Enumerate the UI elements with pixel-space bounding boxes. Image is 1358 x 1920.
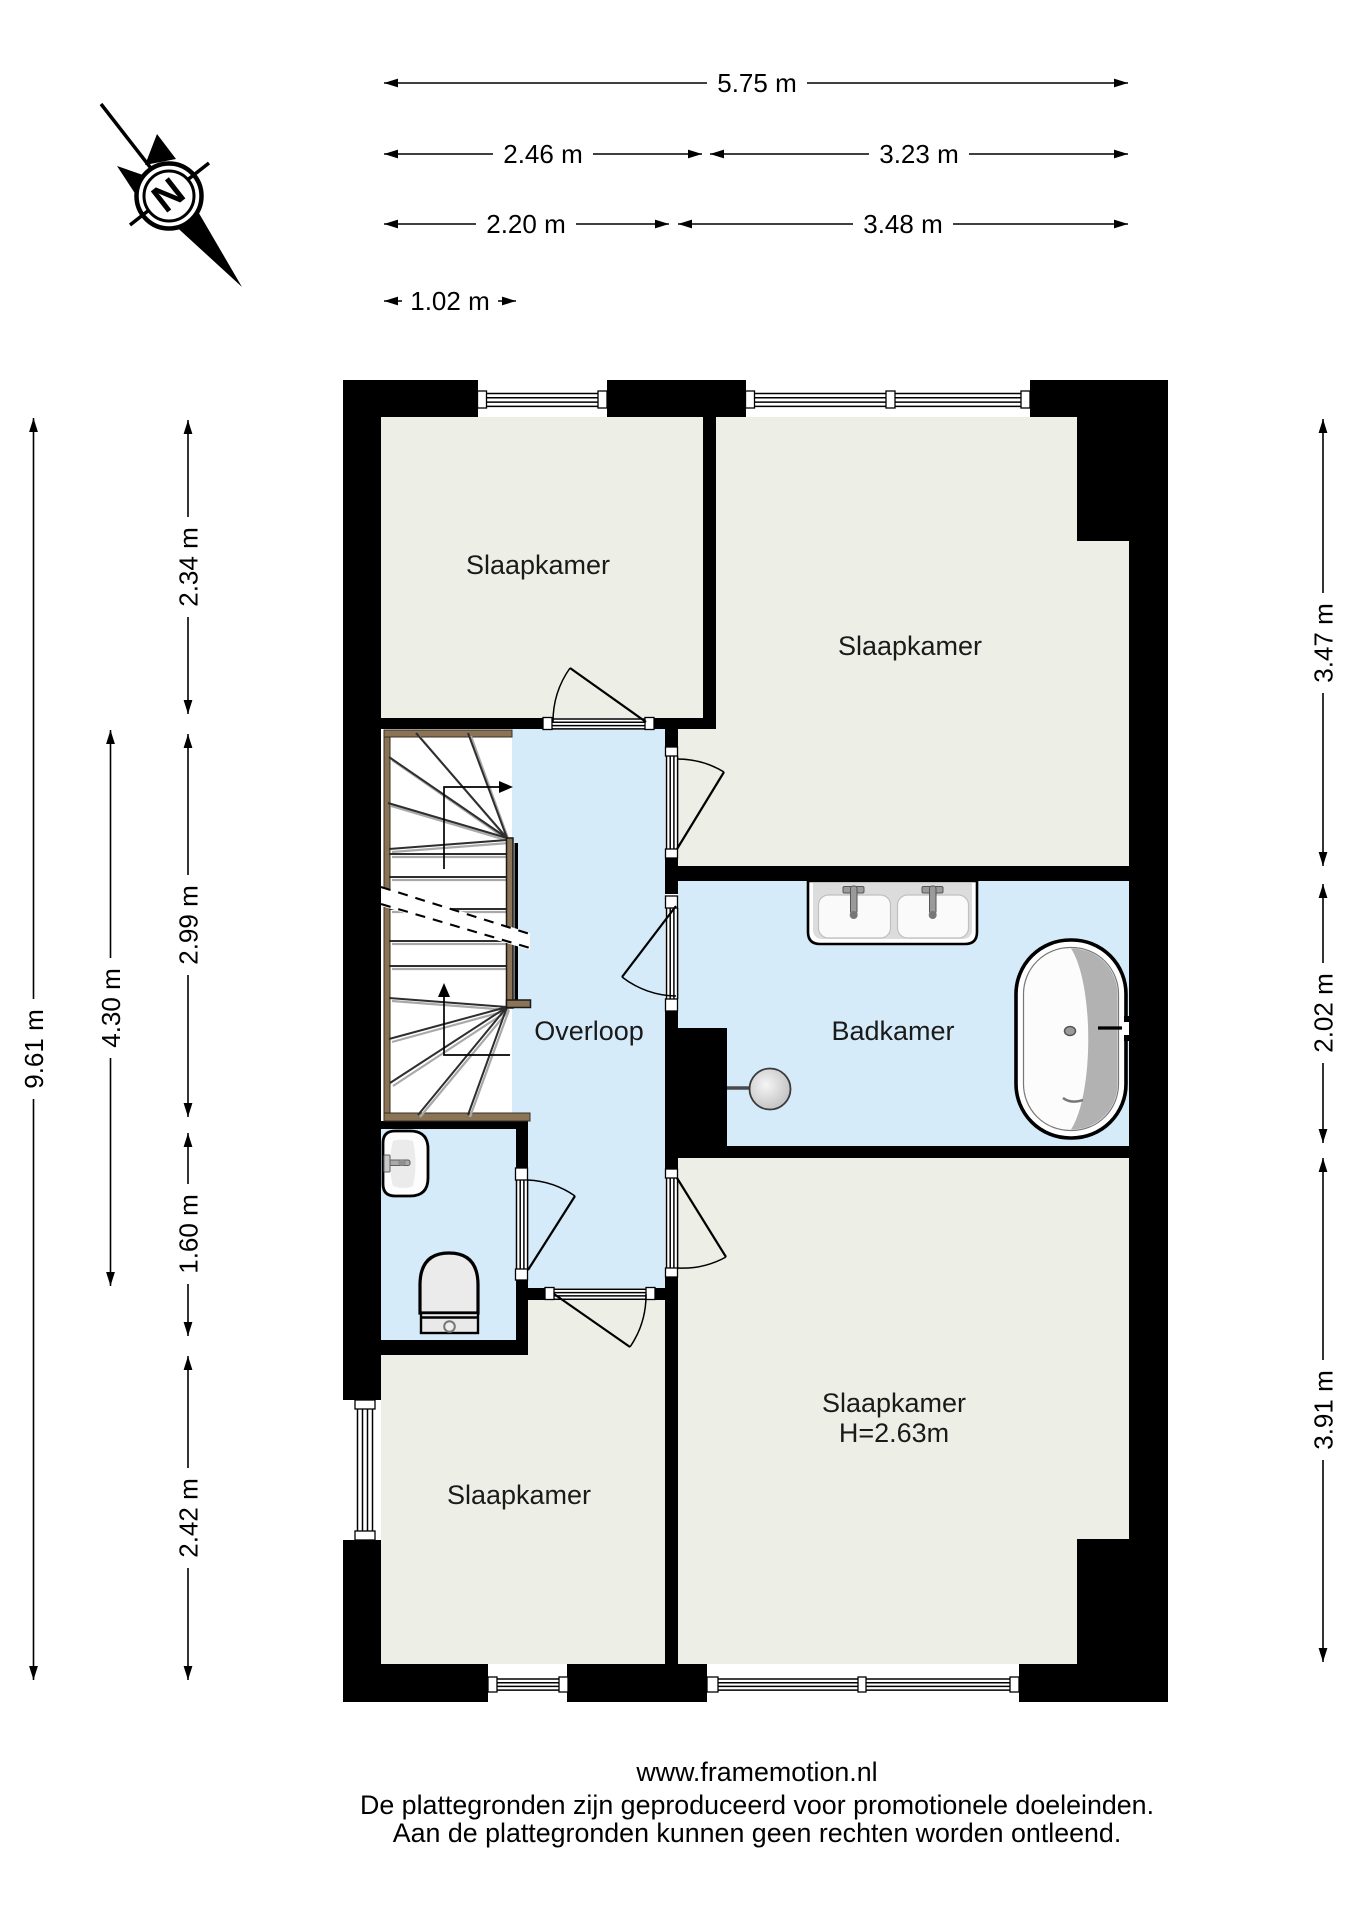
svg-text:1.02 m: 1.02 m: [410, 286, 490, 316]
svg-text:Slaapkamer: Slaapkamer: [447, 1480, 591, 1510]
svg-text:Slaapkamer: Slaapkamer: [838, 631, 982, 661]
svg-text:3.91 m: 3.91 m: [1309, 1370, 1339, 1450]
svg-text:Overloop: Overloop: [534, 1016, 644, 1046]
svg-text:www.framemotion.nl: www.framemotion.nl: [635, 1757, 877, 1787]
svg-text:9.61 m: 9.61 m: [19, 1009, 49, 1089]
svg-text:2.99 m: 2.99 m: [174, 885, 204, 965]
svg-text:2.34 m: 2.34 m: [174, 527, 204, 607]
svg-text:3.23 m: 3.23 m: [879, 139, 959, 169]
svg-text:2.42 m: 2.42 m: [174, 1478, 204, 1558]
svg-text:1.60 m: 1.60 m: [174, 1194, 204, 1274]
svg-text:3.47 m: 3.47 m: [1309, 603, 1339, 683]
svg-text:Aan de plattegronden kunnen ge: Aan de plattegronden kunnen geen rechten…: [393, 1818, 1122, 1848]
svg-text:H=2.63m: H=2.63m: [839, 1418, 949, 1448]
svg-text:5.75 m: 5.75 m: [717, 68, 797, 98]
svg-text:De plattegronden zijn geproduc: De plattegronden zijn geproduceerd voor …: [360, 1790, 1154, 1820]
svg-text:Badkamer: Badkamer: [831, 1016, 954, 1046]
svg-text:4.30 m: 4.30 m: [96, 968, 126, 1048]
svg-text:2.20 m: 2.20 m: [486, 209, 566, 239]
svg-text:2.02 m: 2.02 m: [1309, 973, 1339, 1053]
svg-text:2.46 m: 2.46 m: [503, 139, 583, 169]
svg-text:Slaapkamer: Slaapkamer: [466, 550, 610, 580]
svg-text:3.48 m: 3.48 m: [863, 209, 943, 239]
svg-text:Slaapkamer: Slaapkamer: [822, 1388, 966, 1418]
